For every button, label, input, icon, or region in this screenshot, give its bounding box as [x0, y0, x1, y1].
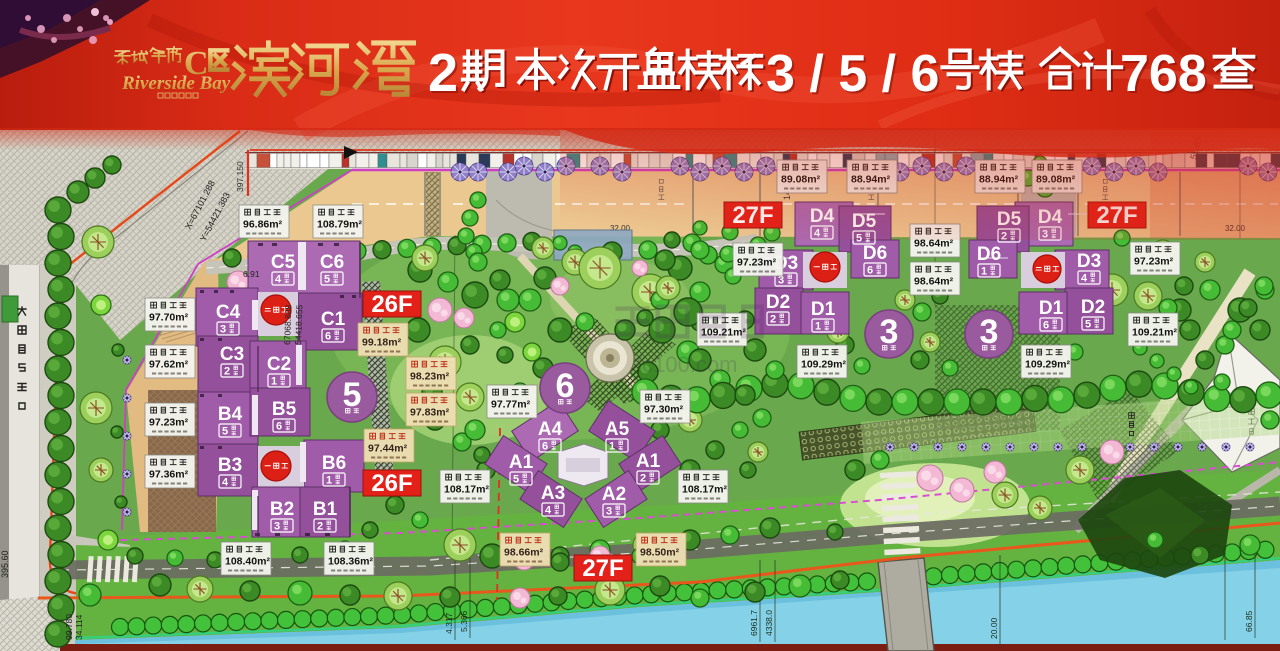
svg-text:3 / 5 / 6: 3 / 5 / 6 — [766, 45, 939, 103]
svg-text:395.60: 395.60 — [0, 550, 10, 578]
svg-text:54418.655: 54418.655 — [293, 304, 304, 345]
svg-text:B4: B4 — [218, 404, 243, 425]
svg-text:D1: D1 — [811, 299, 836, 320]
svg-text:4: 4 — [1081, 273, 1088, 285]
svg-text:97.23m²: 97.23m² — [149, 417, 189, 429]
svg-text:97.23m²: 97.23m² — [1134, 256, 1174, 268]
svg-text:D2: D2 — [1081, 297, 1105, 318]
svg-text:96.86m²: 96.86m² — [243, 219, 283, 231]
svg-text:D6: D6 — [863, 243, 887, 264]
svg-text:A2: A2 — [602, 484, 626, 505]
svg-text:5: 5 — [1085, 319, 1091, 331]
svg-text:4: 4 — [545, 505, 552, 517]
svg-text:109.29m²: 109.29m² — [1025, 359, 1070, 371]
svg-text:1: 1 — [981, 266, 987, 278]
svg-text:D3: D3 — [1077, 251, 1101, 272]
svg-text:B1: B1 — [313, 499, 338, 520]
svg-text:C1: C1 — [321, 309, 346, 330]
svg-text:4338.0: 4338.0 — [764, 610, 774, 636]
svg-text:1: 1 — [815, 321, 821, 333]
svg-text:6: 6 — [325, 331, 331, 343]
svg-text:98.50m²: 98.50m² — [640, 547, 680, 559]
svg-text:97.30m²: 97.30m² — [644, 404, 684, 416]
svg-text:A3: A3 — [541, 483, 565, 504]
svg-text:A4: A4 — [538, 419, 563, 440]
svg-text:27F: 27F — [582, 555, 623, 582]
svg-text:3: 3 — [606, 506, 612, 518]
svg-text:26F: 26F — [371, 291, 412, 318]
svg-text:B2: B2 — [270, 499, 294, 520]
svg-text:Riverside Bay: Riverside Bay — [121, 73, 231, 94]
svg-text:6: 6 — [1043, 320, 1049, 332]
svg-text:98.23m²: 98.23m² — [410, 371, 450, 383]
svg-text:6.91: 6.91 — [243, 269, 260, 279]
svg-text:98.66m²: 98.66m² — [504, 547, 544, 559]
svg-text:98.64m²: 98.64m² — [914, 276, 954, 288]
svg-text:4: 4 — [222, 477, 229, 489]
svg-text:D2: D2 — [766, 292, 790, 313]
svg-text:109.21m²: 109.21m² — [1132, 327, 1177, 339]
svg-text:D6: D6 — [977, 244, 1001, 265]
svg-text:3: 3 — [274, 521, 280, 533]
svg-text:B3: B3 — [218, 455, 242, 476]
svg-text:97.23m²: 97.23m² — [737, 257, 777, 269]
svg-text:97.70m²: 97.70m² — [149, 312, 189, 324]
svg-text:99.780: 99.780 — [64, 614, 74, 640]
svg-text:108.17m²: 108.17m² — [444, 484, 489, 496]
svg-text:768: 768 — [1120, 45, 1207, 103]
svg-text:5: 5 — [324, 274, 330, 286]
svg-text:2: 2 — [317, 521, 323, 533]
svg-text:97.62m²: 97.62m² — [149, 359, 189, 371]
svg-text:C3: C3 — [220, 344, 244, 365]
svg-text:1: 1 — [609, 441, 615, 453]
svg-text:108.17m²: 108.17m² — [682, 484, 727, 496]
svg-text:1: 1 — [271, 376, 277, 388]
svg-text:4.317: 4.317 — [444, 612, 454, 634]
svg-text:108.79m²: 108.79m² — [317, 219, 362, 231]
svg-text:108.40m²: 108.40m² — [225, 556, 270, 568]
svg-text:A1: A1 — [509, 452, 534, 473]
svg-text:1: 1 — [326, 475, 332, 487]
svg-text:6: 6 — [867, 265, 873, 277]
svg-text:97.77m²: 97.77m² — [491, 399, 531, 411]
svg-text:397.150: 397.150 — [235, 161, 245, 192]
svg-text:26F: 26F — [371, 470, 412, 497]
svg-text:D1: D1 — [1039, 298, 1064, 319]
svg-text:5.366: 5.366 — [459, 610, 469, 632]
svg-text:B6: B6 — [322, 453, 346, 474]
svg-text:3: 3 — [220, 324, 226, 336]
svg-text:5: 5 — [513, 474, 519, 486]
svg-text:67068.888: 67068.888 — [282, 304, 293, 345]
svg-text:A1: A1 — [636, 451, 661, 472]
svg-text:66.85: 66.85 — [1244, 610, 1254, 632]
svg-text:C2: C2 — [267, 354, 291, 375]
svg-text:C4: C4 — [216, 302, 241, 323]
svg-text:2: 2 — [640, 473, 646, 485]
svg-text:2: 2 — [428, 43, 458, 103]
svg-text:97.83m²: 97.83m² — [410, 407, 450, 419]
svg-text:5: 5 — [222, 426, 228, 438]
svg-text:20.00: 20.00 — [989, 617, 999, 639]
svg-text:34.114: 34.114 — [74, 614, 84, 640]
svg-text:B5: B5 — [272, 399, 297, 420]
svg-text:109.29m²: 109.29m² — [801, 359, 846, 371]
svg-text:97.44m²: 97.44m² — [368, 443, 408, 455]
svg-text:6: 6 — [542, 441, 548, 453]
svg-text:6961.7: 6961.7 — [749, 610, 759, 636]
svg-text:97.36m²: 97.36m² — [149, 469, 189, 481]
svg-text:2: 2 — [770, 314, 776, 326]
svg-text:C5: C5 — [271, 252, 296, 273]
svg-text:2: 2 — [224, 366, 230, 378]
svg-text:6: 6 — [276, 421, 282, 433]
svg-text:4: 4 — [275, 274, 282, 286]
svg-text:C6: C6 — [320, 252, 344, 273]
svg-text:fc100.com: fc100.com — [636, 352, 738, 377]
svg-text:A5: A5 — [605, 419, 630, 440]
svg-text:99.18m²: 99.18m² — [362, 337, 402, 349]
svg-text:108.36m²: 108.36m² — [328, 556, 373, 568]
